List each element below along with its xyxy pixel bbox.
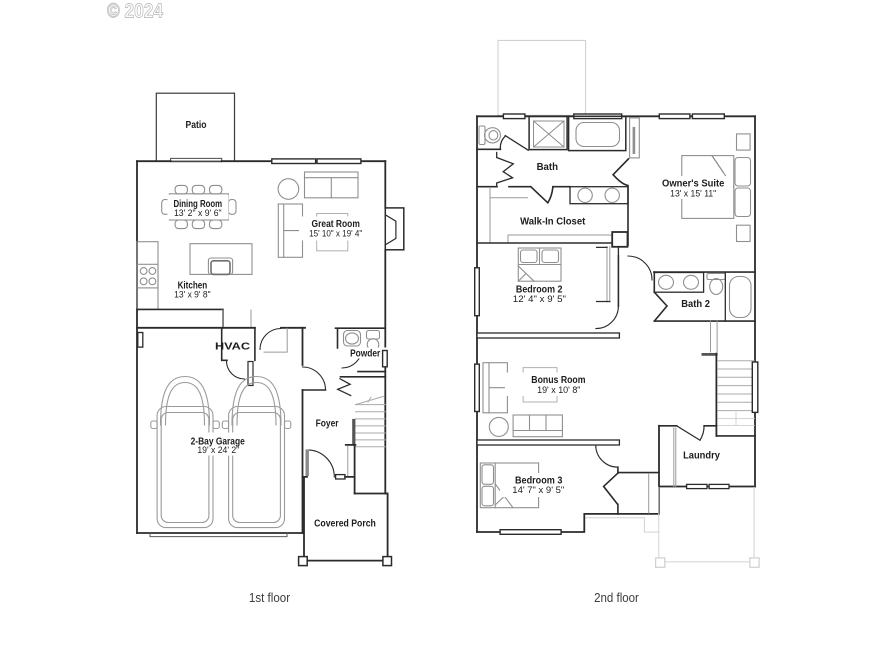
svg-text:Bath: Bath [537, 162, 558, 173]
svg-text:Patio: Patio [186, 120, 207, 131]
svg-text:Bath 2: Bath 2 [681, 299, 710, 310]
svg-text:12' 4" x 9' 5": 12' 4" x 9' 5" [513, 294, 566, 305]
svg-text:13' x 15' 11": 13' x 15' 11" [670, 188, 716, 199]
svg-text:1st floor: 1st floor [249, 590, 291, 605]
svg-text:13' 2" x 9' 6": 13' 2" x 9' 6" [174, 208, 222, 219]
svg-text:13' x 9' 8": 13' x 9' 8" [174, 290, 211, 301]
svg-text:© 2024: © 2024 [107, 1, 164, 23]
svg-text:15' 10" x 19' 4": 15' 10" x 19' 4" [309, 228, 362, 239]
svg-text:2nd floor: 2nd floor [594, 590, 639, 605]
svg-text:Covered Porch: Covered Porch [314, 519, 376, 530]
svg-text:Laundry: Laundry [683, 450, 720, 461]
svg-text:Powder: Powder [350, 349, 380, 360]
svg-text:19' x 24' 2": 19' x 24' 2" [197, 445, 239, 456]
svg-text:19' x 10' 8": 19' x 10' 8" [537, 385, 580, 396]
svg-text:Foyer: Foyer [316, 419, 339, 430]
svg-text:Walk-In Closet: Walk-In Closet [520, 217, 586, 228]
svg-text:HVAC: HVAC [215, 341, 251, 352]
svg-text:14' 7" x 9' 5": 14' 7" x 9' 5" [512, 485, 564, 496]
